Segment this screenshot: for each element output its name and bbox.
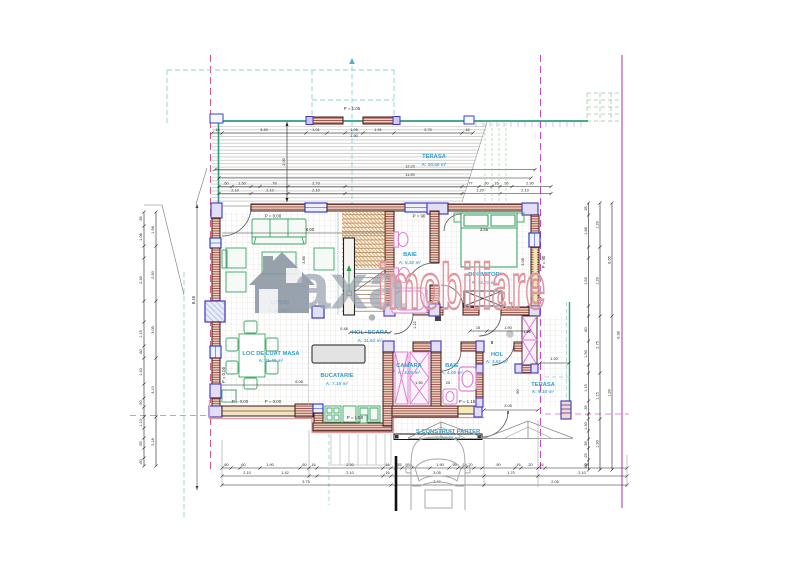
svg-text:.60: .60 <box>240 463 245 467</box>
svg-text:2.10: 2.10 <box>266 189 273 193</box>
svg-text:A: 3.00 m²: A: 3.00 m² <box>398 370 421 375</box>
svg-text:.16: .16 <box>384 471 389 475</box>
svg-text:.90: .90 <box>495 463 500 467</box>
svg-text:1.15: 1.15 <box>584 384 588 391</box>
svg-text:2.75: 2.75 <box>596 341 600 348</box>
svg-text:3.40: 3.40 <box>260 128 267 132</box>
svg-text:6.08: 6.08 <box>295 380 302 384</box>
svg-text:.60: .60 <box>483 182 488 186</box>
svg-text:BUCATARIE: BUCATARIE <box>320 373 353 379</box>
svg-text:1.20: 1.20 <box>596 277 600 284</box>
svg-text:0.48: 0.48 <box>340 327 347 331</box>
svg-text:.90: .90 <box>516 389 520 394</box>
svg-text:3.86: 3.86 <box>302 256 306 263</box>
svg-text:8.00: 8.00 <box>306 227 315 232</box>
svg-text:P = 90: P = 90 <box>541 255 546 268</box>
svg-text:2.05: 2.05 <box>504 404 511 408</box>
svg-text:.77: .77 <box>467 182 472 186</box>
svg-text:.60: .60 <box>139 459 143 464</box>
svg-text:P = 90: P = 90 <box>413 214 426 219</box>
svg-text:1.90: 1.90 <box>608 389 612 396</box>
svg-text:15: 15 <box>476 326 480 330</box>
svg-text:BAIE: BAIE <box>445 363 459 369</box>
svg-text:.60: .60 <box>139 349 143 354</box>
svg-text:1.50: 1.50 <box>238 182 245 186</box>
svg-text:.35: .35 <box>584 441 588 446</box>
svg-text:.35: .35 <box>584 405 588 410</box>
svg-text:1.90: 1.90 <box>350 134 357 138</box>
svg-text:2.30: 2.30 <box>139 276 143 283</box>
svg-text:A: 4.00 m²: A: 4.00 m² <box>441 370 464 375</box>
svg-text:2.70: 2.70 <box>424 128 431 132</box>
svg-text:1.05: 1.05 <box>350 128 357 132</box>
svg-text:P = 1.05: P = 1.05 <box>344 106 361 111</box>
svg-text:1.53: 1.53 <box>584 277 588 284</box>
svg-text:1.90: 1.90 <box>266 463 273 467</box>
svg-text:P = 1.15: P = 1.15 <box>459 399 476 404</box>
svg-text:3.05: 3.05 <box>151 326 155 333</box>
svg-text:1.68: 1.68 <box>584 227 588 234</box>
svg-text:1.90: 1.90 <box>504 326 511 330</box>
svg-text:A: 20.40 m²: A: 20.40 m² <box>421 162 446 167</box>
svg-text:1.50: 1.50 <box>584 350 588 357</box>
svg-text:1.10: 1.10 <box>139 419 143 426</box>
svg-text:2.10: 2.10 <box>312 189 319 193</box>
svg-text:HOL: HOL <box>491 352 504 358</box>
svg-text:2.00: 2.00 <box>282 158 286 165</box>
svg-text:3.75: 3.75 <box>302 480 309 484</box>
svg-text:3.55: 3.55 <box>480 227 489 232</box>
svg-text:1.01: 1.01 <box>312 128 319 132</box>
svg-text:.55: .55 <box>139 441 143 446</box>
svg-text:.35: .35 <box>139 216 143 221</box>
svg-text:2.10: 2.10 <box>231 189 238 193</box>
svg-text:.16: .16 <box>214 128 219 132</box>
svg-text:1.90: 1.90 <box>596 440 600 447</box>
svg-text:3.10: 3.10 <box>151 386 155 393</box>
svg-text:HOL+SCARA: HOL+SCARA <box>352 330 389 336</box>
svg-text:A: 11.62 m²: A: 11.62 m² <box>358 338 383 343</box>
svg-text:1.20: 1.20 <box>476 189 483 193</box>
svg-text:1.42: 1.42 <box>281 471 288 475</box>
svg-text:.50: .50 <box>139 400 143 405</box>
svg-text:2.90: 2.90 <box>526 182 533 186</box>
svg-text:.16: .16 <box>384 463 389 467</box>
svg-text:25: 25 <box>446 381 450 385</box>
svg-text:.60: .60 <box>223 463 228 467</box>
svg-text:1.91: 1.91 <box>374 128 381 132</box>
svg-text:P = 1.50: P = 1.50 <box>347 415 364 420</box>
svg-text:.60: .60 <box>301 463 306 467</box>
svg-text:A: 5.10 m²: A: 5.10 m² <box>532 389 555 394</box>
svg-text:1.30: 1.30 <box>584 422 588 429</box>
svg-text:1.70: 1.70 <box>507 471 514 475</box>
svg-text:8.65: 8.65 <box>608 256 612 263</box>
svg-text:.16: .16 <box>538 463 543 467</box>
svg-text:1.22: 1.22 <box>413 321 417 328</box>
svg-text:1.40: 1.40 <box>139 368 143 375</box>
svg-text:.60: .60 <box>223 182 228 186</box>
svg-text:1.20: 1.20 <box>550 357 557 361</box>
svg-text:CAMARA: CAMARA <box>396 363 423 369</box>
svg-text:6.38: 6.38 <box>617 331 621 338</box>
svg-text:.20: .20 <box>527 463 532 467</box>
svg-text:2.70: 2.70 <box>312 182 319 186</box>
svg-text:2.30: 2.30 <box>346 463 353 467</box>
svg-text:.78: .78 <box>271 182 276 186</box>
svg-text:P = 0.00: P = 0.00 <box>232 399 249 404</box>
svg-text:A: 3.61 m²: A: 3.61 m² <box>486 359 509 364</box>
svg-text:2.10: 2.10 <box>578 471 585 475</box>
svg-text:8.45: 8.45 <box>191 295 196 304</box>
svg-text:A: 11.40 m²: A: 11.40 m² <box>259 358 284 363</box>
svg-text:.80: .80 <box>584 327 588 332</box>
svg-text:.98: .98 <box>583 463 588 467</box>
svg-text:1.50: 1.50 <box>415 381 422 385</box>
svg-text:.16: .16 <box>464 128 469 132</box>
svg-text:TERASA: TERASA <box>422 154 447 160</box>
svg-text:2.10: 2.10 <box>243 471 250 475</box>
svg-text:.16: .16 <box>493 182 498 186</box>
svg-text:TERASA: TERASA <box>531 382 556 388</box>
svg-text:imobiliare: imobiliare <box>378 250 545 322</box>
svg-text:P = 0.00: P = 0.00 <box>221 366 226 383</box>
svg-text:A: 7.15 m²: A: 7.15 m² <box>326 381 349 386</box>
svg-text:1.08: 1.08 <box>139 233 143 240</box>
svg-text:P = 0.00: P = 0.00 <box>265 399 282 404</box>
svg-text:12.23: 12.23 <box>405 165 415 169</box>
svg-text:.16: .16 <box>515 463 520 467</box>
svg-text:2.18: 2.18 <box>151 438 155 445</box>
svg-text:1.15: 1.15 <box>139 330 143 337</box>
svg-text:11.93: 11.93 <box>405 173 414 177</box>
svg-text:1.28: 1.28 <box>523 330 530 334</box>
svg-text:3.08: 3.08 <box>521 258 525 265</box>
svg-text:2.10: 2.10 <box>346 471 353 475</box>
svg-text:LOC DE LUAT MASA: LOC DE LUAT MASA <box>242 351 300 357</box>
svg-text:1.15: 1.15 <box>596 392 600 399</box>
svg-text:.35: .35 <box>584 206 588 211</box>
svg-text:1.90: 1.90 <box>436 463 443 467</box>
svg-text:1.98: 1.98 <box>151 226 155 233</box>
svg-text:2.90: 2.90 <box>151 271 155 278</box>
svg-text:.25: .25 <box>584 453 588 458</box>
svg-text:1.20: 1.20 <box>596 221 600 228</box>
svg-text:P = 0.00: P = 0.00 <box>265 214 282 219</box>
svg-text:.16: .16 <box>310 463 315 467</box>
svg-text:2.05: 2.05 <box>551 480 558 484</box>
svg-text:3.05: 3.05 <box>433 471 440 475</box>
svg-text:2.10: 2.10 <box>521 189 528 193</box>
